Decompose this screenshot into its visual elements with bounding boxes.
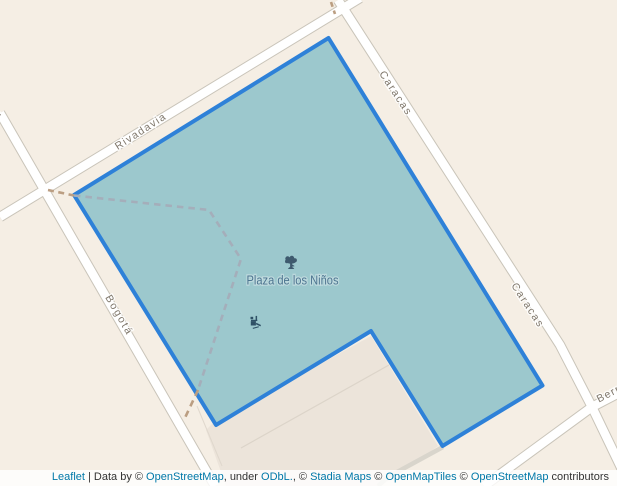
svg-text:Plaza de los Niños: Plaza de los Niños — [247, 273, 339, 288]
